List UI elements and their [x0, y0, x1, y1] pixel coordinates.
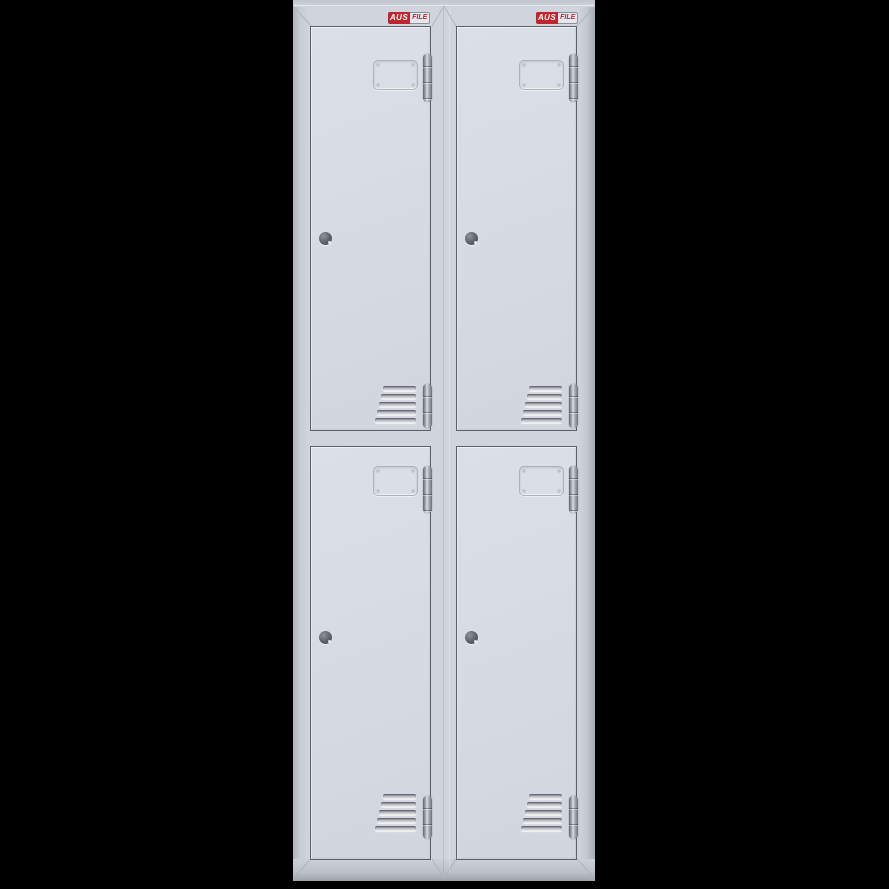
door-hinge-bottom: [569, 796, 578, 839]
locker-cabinet: AUS FILE AUS FILE: [293, 0, 595, 881]
door-hinge-bottom: [569, 384, 578, 428]
ventilation-louvers: [373, 794, 416, 831]
vent-louver: [523, 818, 562, 823]
vent-louver: [525, 810, 562, 815]
vent-louver: [383, 794, 416, 799]
vent-louver: [381, 394, 416, 399]
ausfile-logo: AUS FILE: [536, 12, 578, 24]
logo-aus-badge: AUS: [536, 12, 558, 24]
vent-louver: [521, 418, 562, 423]
locker-door-bottom-left: [310, 446, 431, 860]
vent-louver: [523, 410, 562, 415]
vent-louver: [521, 826, 562, 831]
card-label-holder: [373, 60, 418, 90]
locker-door-top-left: [310, 26, 431, 431]
center-post-seam: [443, 8, 444, 873]
door-hinge-top: [569, 466, 578, 513]
product-image: AUS FILE AUS FILE: [0, 0, 889, 889]
card-label-holder: [519, 60, 564, 90]
vent-louver: [383, 386, 416, 391]
cam-lock: [319, 631, 332, 644]
door-hinge-bottom: [423, 796, 432, 839]
vent-louver: [527, 802, 562, 807]
card-label-holder: [373, 466, 418, 496]
vent-louver: [529, 386, 562, 391]
card-label-holder: [519, 466, 564, 496]
logo-file-badge: FILE: [410, 12, 430, 24]
door-hinge-top: [423, 54, 432, 102]
locker-door-top-right: [456, 26, 577, 431]
cabinet-top-face: [293, 0, 595, 7]
door-hinge-bottom: [423, 384, 432, 428]
vent-louver: [377, 410, 416, 415]
ventilation-louvers: [519, 386, 562, 423]
ventilation-louvers: [373, 386, 416, 423]
ventilation-louvers: [519, 794, 562, 831]
vent-louver: [527, 394, 562, 399]
vent-louver: [525, 402, 562, 407]
door-hinge-top: [423, 466, 432, 513]
cam-lock: [465, 631, 478, 644]
vent-louver: [375, 826, 416, 831]
center-post-highlight: [449, 8, 450, 873]
vent-louver: [379, 810, 416, 815]
logo-aus-badge: AUS: [388, 12, 410, 24]
locker-door-bottom-right: [456, 446, 577, 860]
ausfile-logo: AUS FILE: [388, 12, 430, 24]
vent-louver: [381, 802, 416, 807]
vent-louver: [377, 818, 416, 823]
cam-lock: [465, 232, 478, 245]
vent-louver: [529, 794, 562, 799]
cam-lock: [319, 232, 332, 245]
cabinet-left-side: [293, 0, 310, 881]
cabinet-base: [293, 859, 595, 881]
logo-file-badge: FILE: [558, 12, 578, 24]
vent-louver: [375, 418, 416, 423]
door-hinge-top: [569, 54, 578, 102]
cabinet-right-side: [577, 0, 595, 881]
vent-louver: [379, 402, 416, 407]
